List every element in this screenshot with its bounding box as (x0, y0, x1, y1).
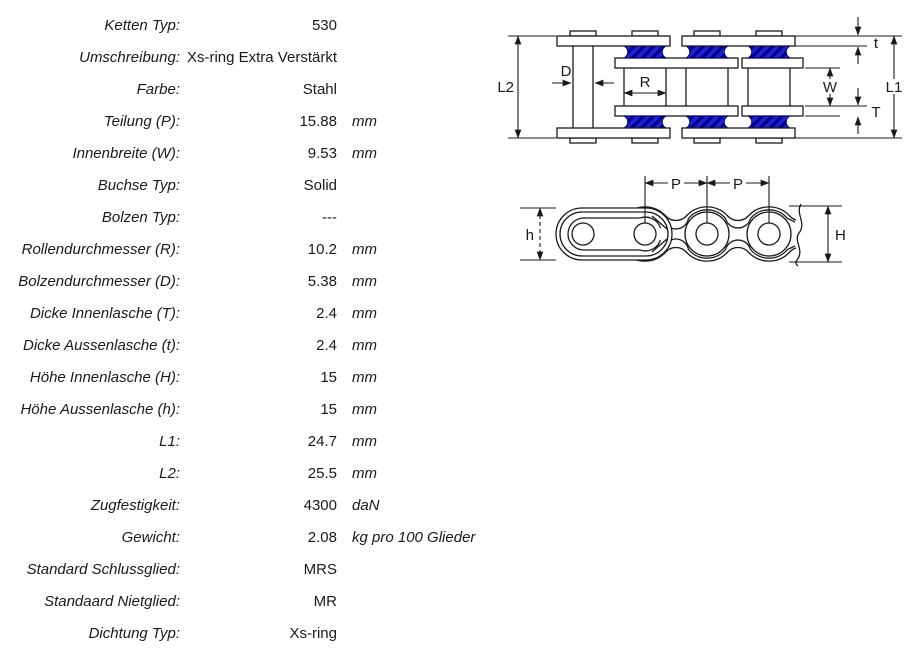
spec-value: Solid (180, 177, 337, 194)
spec-unit: mm (337, 113, 480, 130)
chain-technical-diagram: L2 D R W t T (490, 0, 919, 300)
spec-value: 15 (180, 369, 337, 386)
spec-label: Buchse Typ: (0, 177, 180, 194)
spec-value: 15.88 (180, 113, 337, 130)
spec-value: MR (180, 593, 337, 610)
spec-unit: mm (337, 433, 480, 450)
pin-head (756, 31, 782, 36)
pin-head (570, 138, 596, 143)
dim-label-r: R (640, 74, 651, 91)
dim-label-h-outer: h (526, 227, 534, 244)
spec-value: Stahl (180, 81, 337, 98)
outer-plate (682, 36, 795, 46)
spec-label: Höhe Innenlasche (H): (0, 369, 180, 386)
pin-head (632, 31, 658, 36)
inner-plate (615, 58, 738, 68)
spec-label: Umschreibung: (0, 49, 180, 66)
spec-value: 530 (180, 17, 337, 34)
dim-label-t-outer: t (874, 35, 879, 52)
dim-label-d: D (561, 63, 572, 80)
spec-value: 15 (180, 401, 337, 418)
spec-row: Innenbreite (W): 9.53 mm (0, 137, 480, 169)
spec-row: Höhe Innenlasche (H): 15 mm (0, 361, 480, 393)
pin-head (570, 31, 596, 36)
spec-row: Dicke Innenlasche (T): 2.4 mm (0, 297, 480, 329)
spec-label: Rollendurchmesser (R): (0, 241, 180, 258)
pin (696, 223, 718, 245)
spec-value: 25.5 (180, 465, 337, 482)
spec-row: Teilung (P): 15.88 mm (0, 105, 480, 137)
spec-row: Bolzendurchmesser (D): 5.38 mm (0, 265, 480, 297)
spec-row: L1: 24.7 mm (0, 425, 480, 457)
spec-value: 10.2 (180, 241, 337, 258)
pin (572, 223, 594, 245)
spec-label: Dichtung Typ: (0, 625, 180, 642)
spec-unit: mm (337, 241, 480, 258)
spec-label: Standaard Nietglied: (0, 593, 180, 610)
spec-row: Dicke Aussenlasche (t): 2.4 mm (0, 329, 480, 361)
dim-label-p-left: P (671, 176, 681, 193)
outer-plate (557, 36, 670, 46)
spec-label: L2: (0, 465, 180, 482)
spec-value: Xs-ring (180, 625, 337, 642)
spec-label: Standard Schlussglied: (0, 561, 180, 578)
dim-label-t-inner: T (871, 104, 880, 121)
spec-unit: kg pro 100 Glieder (337, 529, 480, 546)
spec-label: Bolzendurchmesser (D): (0, 273, 180, 290)
spec-value: 24.7 (180, 433, 337, 450)
pin-head (632, 138, 658, 143)
spec-value: 2.4 (180, 337, 337, 354)
inner-plate (742, 58, 803, 68)
spec-unit: mm (337, 273, 480, 290)
spec-label: Dicke Innenlasche (T): (0, 305, 180, 322)
xring-seal (748, 116, 790, 128)
spec-row: Farbe: Stahl (0, 73, 480, 105)
xring-seal (624, 116, 666, 128)
spec-row: L2: 25.5 mm (0, 457, 480, 489)
spec-table: Ketten Typ: 530 Umschreibung: Xs-ring Ex… (0, 9, 480, 649)
spec-value: Xs-ring Extra Verstärkt (180, 49, 337, 66)
spec-row: Ketten Typ: 530 (0, 9, 480, 41)
spec-row: Gewicht: 2.08 kg pro 100 Glieder (0, 521, 480, 553)
spec-label: Teilung (P): (0, 113, 180, 130)
pin (758, 223, 780, 245)
xring-seal (686, 116, 728, 128)
spec-unit: mm (337, 145, 480, 162)
spec-label: Zugfestigkeit: (0, 497, 180, 514)
pin-head (694, 138, 720, 143)
spec-row: Standard Schlussglied: MRS (0, 553, 480, 585)
xring-seal (748, 46, 790, 58)
spec-row: Dichtung Typ: Xs-ring (0, 617, 480, 649)
dim-label-l2: L2 (497, 79, 514, 96)
spec-value: 9.53 (180, 145, 337, 162)
spec-label: Bolzen Typ: (0, 209, 180, 226)
dim-label-w: W (823, 79, 838, 96)
spec-value: --- (180, 209, 337, 226)
spec-unit: mm (337, 401, 480, 418)
xring-seal (624, 46, 666, 58)
pin (634, 223, 656, 245)
spec-unit: mm (337, 305, 480, 322)
xring-seal (686, 46, 728, 58)
dim-label-l1: L1 (886, 79, 903, 96)
spec-row: Zugfestigkeit: 4300 daN (0, 489, 480, 521)
spec-unit: mm (337, 465, 480, 482)
spec-label: Höhe Aussenlasche (h): (0, 401, 180, 418)
spec-row: Buchse Typ: Solid (0, 169, 480, 201)
spec-label: Innenbreite (W): (0, 145, 180, 162)
spec-row: Rollendurchmesser (R): 10.2 mm (0, 233, 480, 265)
break-line (796, 204, 802, 266)
pin-head (694, 31, 720, 36)
spec-value: 2.4 (180, 305, 337, 322)
spec-row: Höhe Aussenlasche (h): 15 mm (0, 393, 480, 425)
spec-unit: mm (337, 337, 480, 354)
spec-label: L1: (0, 433, 180, 450)
inner-plate (615, 106, 738, 116)
top-view-cross-section: L2 D R W t T (497, 17, 906, 143)
dim-label-p-right: P (733, 176, 743, 193)
spec-value: 4300 (180, 497, 337, 514)
spec-unit: daN (337, 497, 480, 514)
spec-label: Dicke Aussenlasche (t): (0, 337, 180, 354)
spec-label: Ketten Typ: (0, 17, 180, 34)
dim-label-h-inner: H (835, 227, 846, 244)
spec-value: MRS (180, 561, 337, 578)
spec-label: Farbe: (0, 81, 180, 98)
spec-value: 5.38 (180, 273, 337, 290)
spec-label: Gewicht: (0, 529, 180, 546)
inner-plate (742, 106, 803, 116)
chain-spec-sheet: Ketten Typ: 530 Umschreibung: Xs-ring Ex… (0, 0, 919, 664)
pin-head (756, 138, 782, 143)
spec-value: 2.08 (180, 529, 337, 546)
spec-row: Umschreibung: Xs-ring Extra Verstärkt (0, 41, 480, 73)
outer-plate (557, 128, 670, 138)
spec-unit: mm (337, 369, 480, 386)
spec-row: Bolzen Typ: --- (0, 201, 480, 233)
spec-row: Standaard Nietglied: MR (0, 585, 480, 617)
outer-plate (682, 128, 795, 138)
side-view: P P h H (520, 176, 846, 266)
